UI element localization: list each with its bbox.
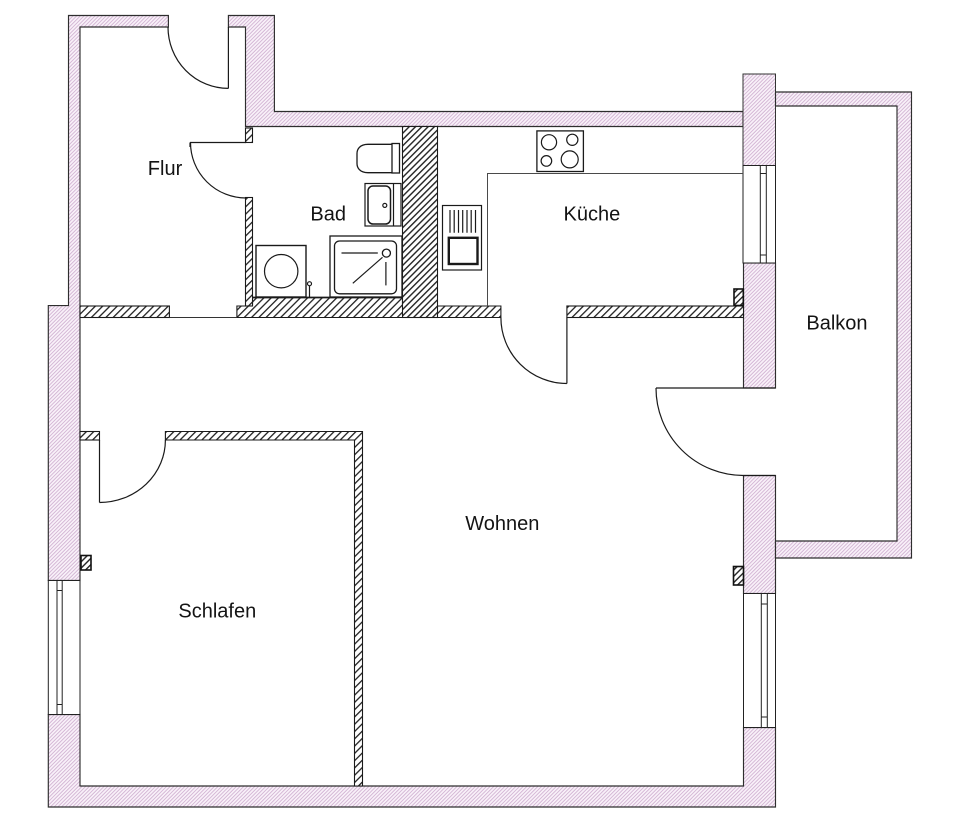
svg-text:Flur: Flur [148, 158, 183, 180]
svg-text:Bad: Bad [310, 204, 346, 226]
svg-text:Schlafen: Schlafen [178, 601, 256, 623]
svg-text:Wohnen: Wohnen [465, 513, 539, 535]
svg-text:Küche: Küche [564, 203, 621, 225]
svg-text:Balkon: Balkon [806, 313, 867, 335]
